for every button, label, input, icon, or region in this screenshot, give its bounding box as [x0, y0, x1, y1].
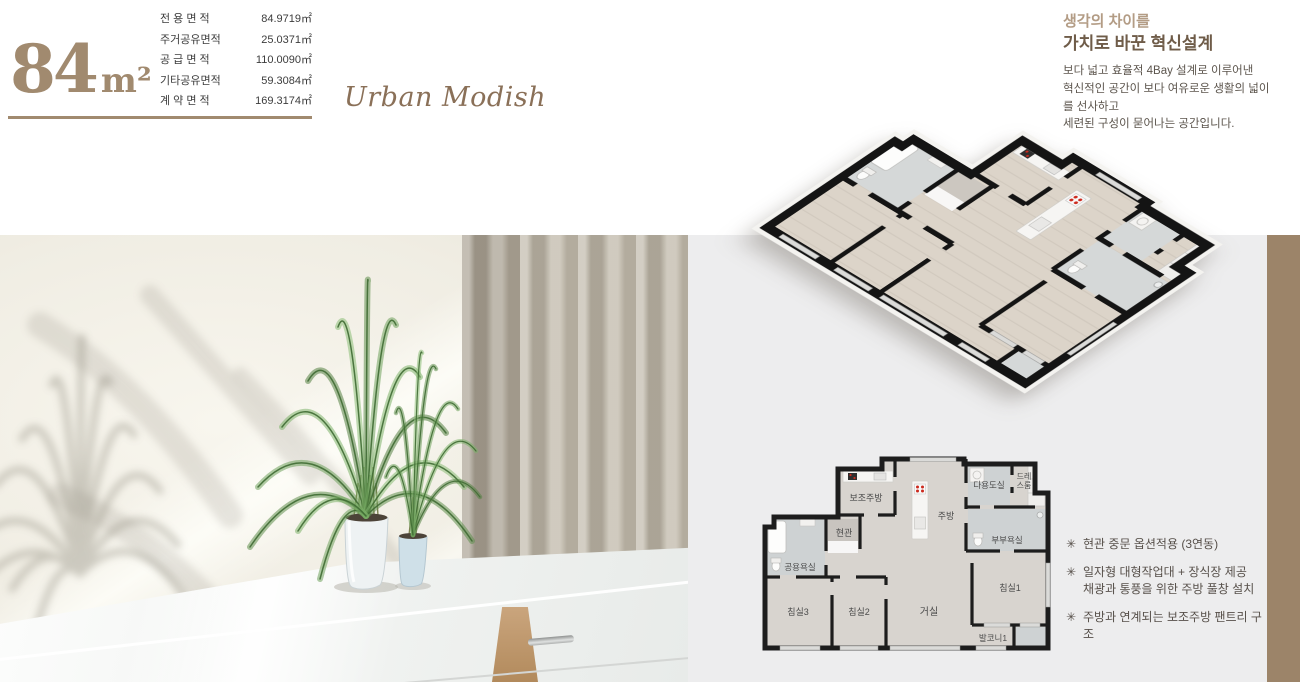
area-row-label: 계 약 면 적: [160, 91, 210, 112]
intro-body-line: 세련된 구성이 묻어나는 공간입니다.: [1063, 116, 1273, 134]
feature-item: ✳주방과 연계되는 보조주방 팬트리 구조: [1066, 609, 1266, 643]
feature-line: 일자형 대형작업대 + 장식장 제공: [1083, 564, 1254, 581]
window: [976, 646, 1006, 650]
island-cooktop: [915, 484, 926, 494]
window: [840, 646, 878, 650]
room-label-common-bath: 공용욕실: [784, 562, 815, 572]
asterisk-icon: ✳: [1066, 536, 1083, 553]
entry-step: [828, 541, 858, 553]
toilet-tank: [973, 533, 983, 538]
cooktop-burner: [921, 490, 924, 493]
small-plant-pot: [399, 537, 427, 587]
intro-body: 보다 넓고 효율적 4Bay 설계로 이루어낸혁신적인 공간이 보다 여유로운 …: [1063, 63, 1273, 134]
room-label-balcony1: 발코니1: [979, 633, 1007, 643]
island-cooktop: [1066, 193, 1087, 206]
window: [890, 646, 960, 650]
room-label-utility: 다용도실: [973, 480, 1004, 490]
area-unit: m²: [101, 64, 152, 98]
room-label-bedroom2: 침실2: [848, 607, 870, 617]
feature-item: ✳현관 중문 옵션적용 (3연동): [1066, 536, 1266, 553]
balcony-tile-floor: [1016, 627, 1046, 646]
feature-line: 채광과 통풍을 위한 주방 풀창 설치: [1083, 581, 1254, 598]
toilet-tank: [771, 558, 781, 563]
entry-step: [925, 186, 965, 211]
asterisk-icon: ✳: [1066, 609, 1083, 643]
aux-sink: [1043, 163, 1061, 175]
window: [984, 623, 1010, 627]
aux-kitchen-counter: [1013, 145, 1070, 180]
area-table-row: 계 약 면 적169.3174㎡: [160, 91, 312, 112]
plants: [250, 280, 480, 593]
area-row-label: 기타공유면적: [160, 71, 221, 92]
area-row-value: 84.9719㎡: [261, 9, 312, 30]
aux-sink: [874, 473, 886, 480]
window: [910, 458, 956, 462]
cooktop-burner: [1025, 155, 1029, 158]
area-table-row: 기타공유면적59.3084㎡: [160, 71, 312, 92]
bathtub: [870, 139, 920, 172]
room-label-aux-kitchen: 보조주방: [849, 493, 882, 503]
cooktop-burner: [1025, 150, 1029, 153]
feature-line: 주방과 연계되는 보조주방 팬트리 구조: [1083, 609, 1266, 643]
area-table-row: 공 급 면 적110.0090㎡: [160, 50, 312, 71]
room-label-bedroom1: 침실1: [999, 583, 1021, 593]
cooktop-burner: [853, 477, 855, 479]
island-sink: [1029, 217, 1052, 232]
room-label-living: 거실: [920, 606, 938, 618]
feature-text: 현관 중문 옵션적용 (3연동): [1083, 536, 1218, 553]
area-row-label: 공 급 면 적: [160, 50, 210, 71]
intro-text-block: 생각의 차이를 가치로 바꾼 혁신설계 보다 넓고 효율적 4Bay 설계로 이…: [1063, 13, 1273, 134]
room-label-master-bath: 부부욕실: [991, 535, 1022, 545]
room-label-dress: 드레스룸: [1017, 472, 1032, 490]
interior-photo: [0, 235, 688, 682]
area-number: 84: [10, 36, 96, 102]
feature-list: ✳현관 중문 옵션적용 (3연동)✳일자형 대형작업대 + 장식장 제공채광과 …: [1066, 536, 1266, 654]
area-row-value: 25.0371㎡: [261, 30, 312, 51]
area-row-label: 전 용 면 적: [160, 9, 210, 30]
tagline: Urban Modish: [344, 82, 546, 113]
aux-cooktop: [848, 473, 857, 480]
common-bath-floor: [846, 137, 958, 209]
feature-line: 현관 중문 옵션적용 (3연동): [1083, 536, 1218, 553]
cooktop-burner: [1068, 198, 1074, 202]
floorplan-2d: 보조주방주방다용도실드레스룸현관부부욕실공용욕실침실3침실2거실침실1발코니1: [762, 457, 1052, 657]
cooktop-burner: [1077, 198, 1083, 202]
cooktop-burner: [1073, 195, 1079, 199]
intro-body-line: 보다 넓고 효율적 4Bay 설계로 이루어낸: [1063, 63, 1273, 81]
toilet: [854, 169, 872, 181]
area-row-value: 110.0090㎡: [256, 50, 312, 71]
toilet-tank: [862, 167, 876, 176]
room-label-entry: 현관: [836, 528, 853, 538]
area-row-value: 169.3174㎡: [255, 91, 312, 112]
cooktop-burner: [921, 486, 924, 489]
asterisk-icon: ✳: [1066, 564, 1083, 598]
feature-item: ✳일자형 대형작업대 + 장식장 제공채광과 통풍을 위한 주방 풀창 설치: [1066, 564, 1266, 598]
aux-cooktop: [1019, 149, 1035, 159]
cooktop-burner: [916, 490, 919, 493]
window: [1096, 172, 1142, 200]
intro-body-line: 혁신적인 공간이 보다 여유로운 생활의 넓이를 선사하고: [1063, 81, 1273, 117]
room-label-bedroom3: 침실3: [787, 607, 809, 617]
cooktop-burner: [916, 486, 919, 489]
photo-plants: [0, 235, 688, 682]
area-table-row: 전 용 면 적84.9719㎡: [160, 9, 312, 30]
window: [780, 646, 820, 650]
area-row-value: 59.3084㎡: [261, 71, 312, 92]
accent-stripe: [1267, 235, 1300, 682]
entry-floor: [925, 170, 988, 211]
shower-drain: [1037, 512, 1043, 518]
cooktop-burner: [1073, 201, 1079, 205]
brochure-page: 84 m² 전 용 면 적84.9719㎡주거공유면적25.0371㎡공 급 면…: [0, 0, 1300, 682]
cooktop-burner: [849, 474, 851, 476]
bath-sink: [800, 519, 815, 526]
window: [1020, 623, 1040, 627]
area-row-label: 주거공유면적: [160, 30, 221, 51]
feature-text: 일자형 대형작업대 + 장식장 제공채광과 통풍을 위한 주방 풀창 설치: [1083, 564, 1254, 598]
kitchen-island: [1016, 190, 1092, 240]
window: [1046, 563, 1050, 607]
washer: [1129, 213, 1156, 231]
intro-subtitle: 생각의 차이를: [1063, 13, 1273, 32]
area-table-row: 주거공유면적25.0371㎡: [160, 30, 312, 51]
room-label-kitchen: 주방: [938, 511, 955, 521]
area-table: 전 용 면 적84.9719㎡주거공유면적25.0371㎡공 급 면 적110.…: [160, 9, 312, 112]
area-title-underline: [8, 116, 312, 119]
feature-text: 주방과 연계되는 보조주방 팬트리 구조: [1083, 609, 1266, 643]
intro-title: 가치로 바꾼 혁신설계: [1063, 33, 1273, 54]
area-title: 84 m²: [10, 36, 152, 102]
bath-sink: [927, 155, 948, 168]
island-sink: [915, 517, 926, 529]
